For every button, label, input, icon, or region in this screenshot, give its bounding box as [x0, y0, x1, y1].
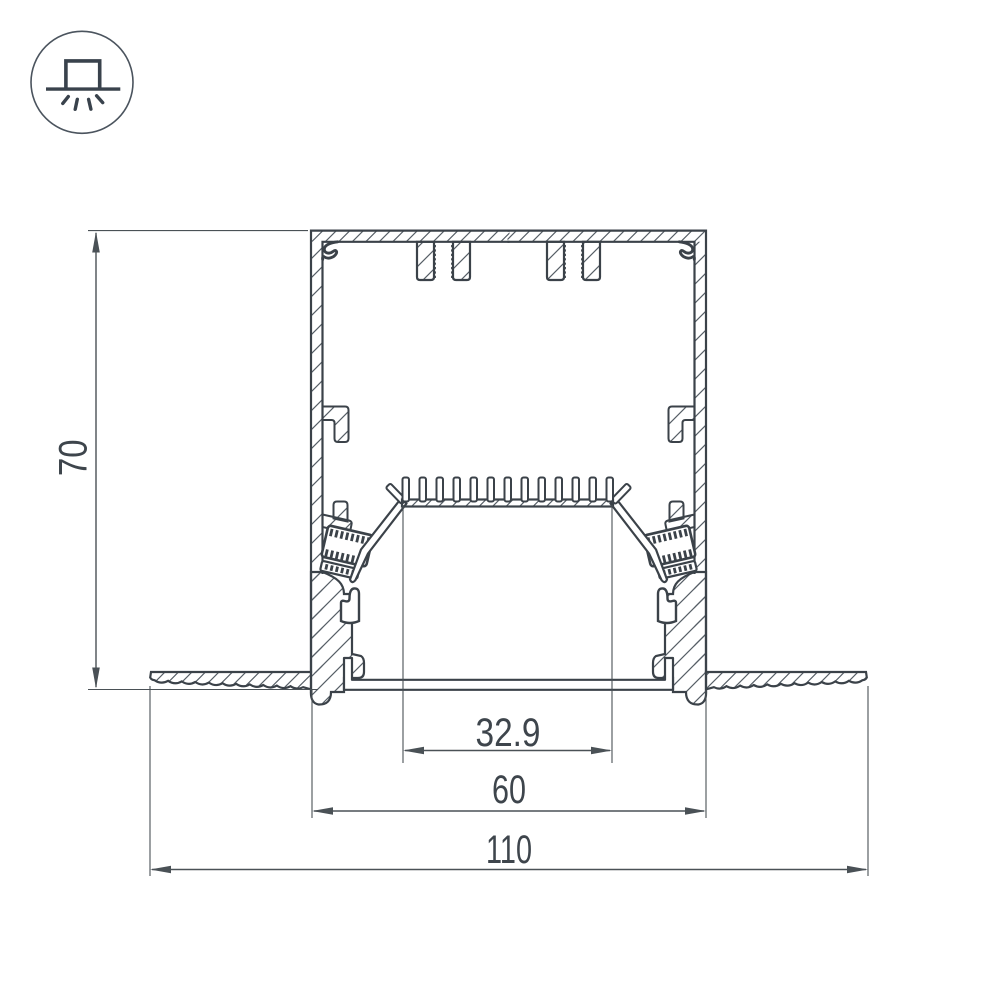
svg-text:110: 110 [486, 828, 532, 872]
svg-text:70: 70 [52, 440, 96, 477]
svg-text:32.9: 32.9 [476, 711, 541, 755]
svg-text:60: 60 [492, 768, 526, 812]
